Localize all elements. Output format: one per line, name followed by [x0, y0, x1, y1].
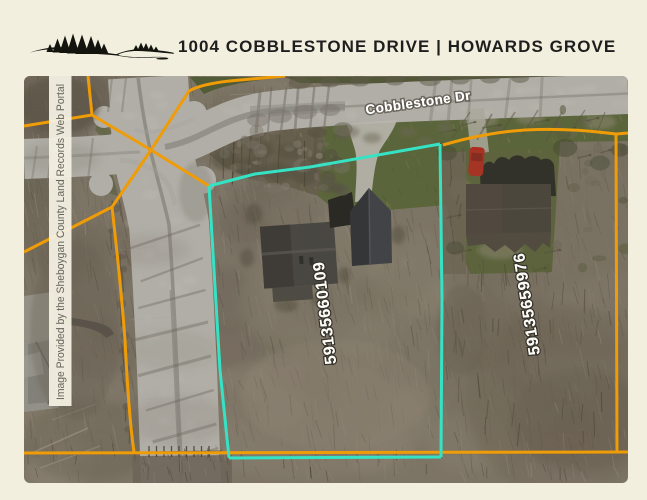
svg-text:Image Provided by the Sheboyga: Image Provided by the Sheboygan County L…	[55, 84, 67, 400]
